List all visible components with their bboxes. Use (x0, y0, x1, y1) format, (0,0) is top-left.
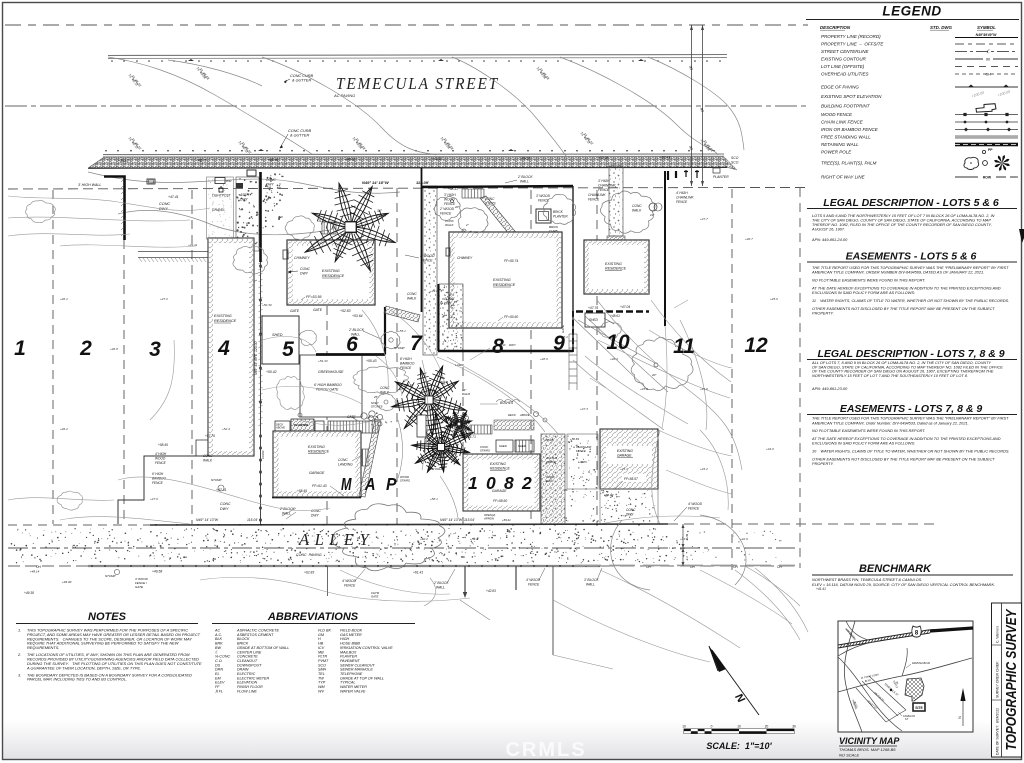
svg-text:3' WOOD: 3' WOOD (536, 194, 551, 198)
svg-text:ALLEY: ALLEY (298, 530, 374, 549)
svg-text:AMERICAN TITLE COMPANY, Order: AMERICAN TITLE COMPANY, Order Number: DI… (811, 421, 969, 425)
svg-text:8: 8 (504, 473, 514, 493)
svg-text:N49° 14' 18"W: N49° 14' 18"W (362, 180, 390, 185)
svg-text:+58.06: +58.06 (544, 438, 554, 442)
svg-text:2.: 2. (17, 652, 21, 657)
svg-text:1: 1 (14, 337, 26, 360)
svg-text:PALM: PALM (377, 214, 386, 218)
svg-text:WOOD: WOOD (155, 457, 166, 461)
svg-text:GATE: GATE (290, 309, 300, 313)
svg-text:STD. DWG: STD. DWG (930, 25, 953, 30)
svg-text:PROPERTY.: PROPERTY. (812, 462, 834, 466)
svg-text:LIGHTPOST: LIGHTPOST (212, 194, 232, 198)
svg-text:LOTS 5 AND 6 AND THE NORTHWEST: LOTS 5 AND 6 AND THE NORTHWESTERLY 15 FE… (812, 214, 995, 218)
svg-text:GREENHOUSE: GREENHOUSE (318, 370, 344, 374)
svg-text:N49° 43' 49"E 120.00': N49° 43' 49"E 120.00' (254, 341, 258, 375)
svg-text:+44.0: +44.0 (766, 447, 774, 451)
svg-text:14" PALM: 14" PALM (430, 467, 444, 471)
svg-text:NORTHWEST BRASS PIN, TEMECULA: NORTHWEST BRASS PIN, TEMECULA STREET & C… (812, 578, 922, 582)
svg-text:FENCE: FENCE (155, 461, 167, 465)
svg-text:SITE: SITE (915, 706, 923, 710)
svg-text:4' HIGH: 4' HIGH (155, 452, 167, 456)
svg-text:DWY: DWY (266, 183, 274, 187)
svg-text:WV: WV (318, 689, 324, 693)
svg-text:GARAGE: GARAGE (309, 471, 325, 475)
svg-text:DECK: DECK (508, 413, 516, 417)
svg-text:GARAGE: GARAGE (617, 454, 632, 458)
svg-text:PROPERTY LINE – OFFSITE: PROPERTY LINE – OFFSITE (821, 41, 884, 46)
svg-text:CONC: CONC (203, 454, 213, 458)
svg-text:EXISTING: EXISTING (308, 445, 325, 449)
svg-text:12: 12 (744, 334, 768, 357)
svg-text:2: 2 (79, 337, 92, 360)
svg-text:TREE(S), PLANT(S), PALM: TREE(S), PLANT(S), PALM (821, 160, 877, 165)
svg-text:GATE: GATE (371, 595, 379, 599)
svg-text:AT THE DATE HEREOF EXCEPTIONS: AT THE DATE HEREOF EXCEPTIONS TO COVERAG… (811, 286, 1001, 290)
svg-text:DATE OF SURVEY: 8/24/2022: DATE OF SURVEY: 8/24/2022 (996, 708, 1000, 755)
svg-text:PLANTER: PLANTER (553, 215, 568, 219)
svg-text:LEGEND: LEGEND (882, 4, 941, 19)
svg-text:4: 4 (217, 337, 230, 360)
svg-text:CONC: CONC (261, 449, 265, 459)
svg-text:RESIDENCE: RESIDENCE (308, 450, 330, 454)
svg-text:RETAINING WALL: RETAINING WALL (821, 142, 859, 147)
svg-text:NORTHWESTERLY 15 FEET OF LOT 7: NORTHWESTERLY 15 FEET OF LOT 7 AND THE S… (812, 374, 968, 378)
svg-text:+52.83: +52.83 (340, 309, 351, 313)
svg-text:CHAINLINK: CHAINLINK (588, 193, 606, 197)
svg-text:THOMAS BROS. MAP 1268-B5: THOMAS BROS. MAP 1268-B5 (839, 747, 896, 752)
svg-text:+56.00: +56.00 (604, 493, 614, 497)
svg-text:APN: 449-861-23-00: APN: 449-861-23-00 (811, 387, 848, 391)
svg-text:+49.14: +49.14 (30, 570, 40, 574)
svg-text:EXISTING: EXISTING (605, 262, 622, 266)
svg-text:EDGE OF PAVING: EDGE OF PAVING (821, 84, 859, 89)
svg-text:+47.3: +47.3 (580, 407, 588, 411)
svg-text:NO PLOTTABLE EASEMENTS WERE FO: NO PLOTTABLE EASEMENTS WERE FOUND IN THI… (812, 279, 925, 283)
svg-text:PROPERTY.: PROPERTY. (812, 312, 834, 316)
svg-text:2' BLOCK: 2' BLOCK (348, 328, 365, 332)
svg-text:THE CITY OF SAN DIEGO, COUNTY: THE CITY OF SAN DIEGO, COUNTY OF SAN DIE… (812, 219, 991, 223)
svg-text:FF=50.60: FF=50.60 (504, 315, 518, 319)
svg-text:OTHER EASEMENTS NOT DISCLOSED: OTHER EASEMENTS NOT DISCLOSED BY THE TIT… (812, 458, 995, 462)
svg-text:APN: 449-861-24-00: APN: 449-861-24-00 (811, 238, 848, 242)
svg-text:PP: PP (988, 148, 993, 152)
svg-text:+47.7: +47.7 (700, 217, 708, 221)
svg-text:+53.64: +53.64 (352, 314, 363, 318)
svg-text:1.: 1. (18, 628, 21, 633)
svg-text:AMERICAN TITLE COMPANY, ORDER: AMERICAN TITLE COMPANY, ORDER NUMBER DIV… (811, 271, 984, 275)
svg-text:PALM: PALM (462, 392, 470, 396)
svg-text:FENCE: FENCE (440, 212, 452, 216)
svg-text:115.09': 115.09' (416, 180, 430, 185)
svg-text:+46.7: +46.7 (745, 237, 753, 241)
svg-text:8: 8 (492, 335, 504, 358)
svg-text:BAMBOO: BAMBOO (400, 362, 415, 366)
svg-text:+57.76: +57.76 (408, 415, 418, 419)
svg-text:+50.42: +50.42 (266, 370, 277, 374)
svg-text:STAIRS: STAIRS (400, 479, 410, 483)
svg-text:RESIDENCE: RESIDENCE (605, 267, 627, 271)
svg-text:SCO: SCO (731, 161, 739, 165)
svg-text:WALK: WALK (632, 209, 642, 213)
svg-text:AT THE DATE HEREOF EXCEPTIONS: AT THE DATE HEREOF EXCEPTIONS TO COVERAG… (811, 437, 1001, 441)
svg-text:CONC: CONC (626, 508, 636, 512)
svg-text:DWY: DWY (444, 302, 452, 306)
svg-text:THEREOF NO. 1082, FILED IN THE: THEREOF NO. 1082, FILED IN THE OFFICE OF… (812, 223, 992, 227)
svg-text:APRON: APRON (483, 517, 495, 521)
svg-text:+49.02: +49.02 (345, 158, 355, 162)
svg-text:SURVEY CREW CHIEF:: SURVEY CREW CHIEF: (996, 661, 1000, 698)
svg-text:CONC: CONC (444, 297, 454, 301)
svg-text:STUMP: STUMP (211, 478, 222, 482)
svg-text:FENCE: FENCE (676, 200, 688, 204)
svg-text:+58.45: +58.45 (158, 443, 168, 447)
svg-text:NO SCALE: NO SCALE (839, 753, 860, 758)
svg-text:STAIRS: STAIRS (480, 449, 490, 453)
svg-text:+45.8: +45.8 (640, 387, 648, 391)
svg-text:7: 7 (410, 332, 423, 355)
svg-text:+46.3: +46.3 (610, 357, 618, 361)
svg-text:CONC: CONC (300, 267, 311, 271)
svg-text:EXCLUSIONS IN SAID POLICY FORM: EXCLUSIONS IN SAID POLICY FORM ARE AS FO… (812, 442, 915, 446)
svg-text:N49° 14' 13"W: N49° 14' 13"W (196, 518, 219, 522)
svg-text:10: 10 (682, 725, 686, 729)
svg-text:STREET CENTERLINE: STREET CENTERLINE (821, 49, 870, 54)
svg-text:11: 11 (673, 335, 695, 358)
svg-text:+49.30: +49.30 (62, 580, 72, 584)
svg-text:VICINITY MAP: VICINITY MAP (839, 736, 900, 746)
svg-text:7.5': 7.5' (685, 556, 689, 561)
svg-text:EXISTING: EXISTING (322, 269, 340, 273)
svg-text:CRMLS: CRMLS (505, 739, 586, 761)
svg-text:+46.1: +46.1 (60, 297, 68, 301)
svg-text:CONC: CONC (338, 458, 348, 462)
svg-text:+48.76: +48.76 (196, 159, 206, 163)
svg-text:STUMP: STUMP (394, 346, 405, 350)
svg-text:6: 6 (346, 333, 358, 356)
svg-text:CONC: CONC (407, 292, 417, 296)
svg-text:3' HIGH WALL: 3' HIGH WALL (78, 183, 101, 187)
svg-text:+49.12: +49.12 (432, 157, 442, 161)
svg-text:SCALE: 1"=10': SCALE: 1"=10' (706, 741, 772, 751)
svg-text:GATE: GATE (313, 308, 323, 312)
svg-text:2' BLOCK: 2' BLOCK (433, 581, 449, 585)
svg-text:ABOVE: ABOVE (519, 413, 530, 417)
svg-text:POWER POLE: POWER POLE (821, 149, 852, 154)
svg-text:WOOD FENCE: WOOD FENCE (821, 112, 853, 117)
svg-text:RESIDENCE: RESIDENCE (493, 283, 516, 287)
svg-text:FENCE: FENCE (528, 583, 540, 587)
svg-text:115.04': 115.04' (247, 518, 258, 522)
svg-text:+46.2: +46.2 (60, 427, 68, 431)
svg-text:+49.11: +49.11 (188, 243, 198, 247)
svg-text:15': 15' (675, 540, 679, 544)
svg-text:DWY: DWY (509, 343, 517, 347)
svg-text:CONC: CONC (266, 178, 276, 182)
svg-text:5: 5 (282, 338, 294, 361)
svg-text:SHED: SHED (589, 318, 599, 322)
svg-text:23": 23" (649, 213, 655, 217)
svg-text:+57.76: +57.76 (205, 434, 215, 438)
svg-text:+50.18: +50.18 (598, 156, 608, 160)
svg-text:+43.2: +43.2 (700, 467, 708, 471)
svg-text:FF=58.60: FF=58.60 (493, 499, 507, 503)
svg-text:SYMBOL: SYMBOL (977, 25, 996, 30)
svg-text:CONC PAVING: CONC PAVING (296, 553, 322, 557)
svg-text:STUMP: STUMP (105, 574, 116, 578)
svg-text:4' WOOD: 4' WOOD (688, 502, 703, 506)
svg-text:THE TITLE REPORT USED FOR THIS: THE TITLE REPORT USED FOR THIS TOPOGRAPH… (812, 417, 1009, 421)
svg-text:DWY: DWY (300, 272, 309, 276)
svg-text:0: 0 (486, 473, 496, 493)
svg-text:10: 10 (737, 725, 741, 729)
svg-text:36": 36" (377, 209, 383, 213)
svg-text:PARCEL MAP, INCLUDING TIES TO: PARCEL MAP, INCLUDING TIES TO AND B3 CON… (27, 677, 127, 682)
svg-text:CONC: CONC (220, 502, 231, 506)
svg-text:+52.4: +52.4 (222, 427, 230, 431)
svg-text:AUGUST 26, 1907.: AUGUST 26, 1907. (811, 228, 845, 232)
svg-text:2' BLOCK: 2' BLOCK (517, 175, 533, 179)
svg-text:DESCRIPTION: DESCRIPTION (820, 25, 851, 30)
svg-text:EXISTING CONTOUR: EXISTING CONTOUR (821, 56, 867, 61)
svg-text:EASEMENTS - LOTS 7, 8 & 9: EASEMENTS - LOTS 7, 8 & 9 (840, 403, 983, 415)
svg-text:4' WOOD: 4' WOOD (526, 578, 541, 582)
svg-text:+58.1: +58.1 (430, 497, 438, 501)
svg-text:+56.63: +56.63 (570, 437, 579, 441)
svg-text:REQUIREMENTS.: REQUIREMENTS. (27, 645, 59, 650)
svg-text:PROPERTY LINE (RECORD): PROPERTY LINE (RECORD) (821, 34, 881, 39)
svg-text:LEGAL DESCRIPTION - LOTS 7, 8: LEGAL DESCRIPTION - LOTS 7, 8 & 9 (817, 348, 1004, 360)
svg-text:EXCLUSIONS IN SAID POLICY FORM: EXCLUSIONS IN SAID POLICY FORM ARE AS FO… (812, 291, 915, 295)
svg-text:EXISTING: EXISTING (617, 449, 633, 453)
svg-text:FREE STANDING WALL: FREE STANDING WALL (821, 134, 871, 139)
svg-text:A GUARANTEE OF THEIR LOCATION,: A GUARANTEE OF THEIR LOCATION, DEPTH, SI… (26, 665, 141, 670)
svg-text:2' WOOD: 2' WOOD (439, 207, 455, 211)
svg-text:P: P (386, 474, 397, 494)
svg-text:SHED: SHED (518, 444, 526, 448)
svg-text:+49.58: +49.58 (152, 570, 162, 574)
svg-text:1: 1 (468, 473, 478, 493)
svg-text:WALL: WALL (436, 586, 445, 590)
svg-text:ELEV = 16.116, DATUM NGVD 29,: ELEV = 16.116, DATUM NGVD 29, SOURCE: CI… (812, 583, 995, 587)
svg-text:DWY: DWY (311, 514, 319, 518)
svg-text:FAMOSA BLVD: FAMOSA BLVD (912, 661, 930, 665)
svg-text:NO PLOTTABLE EASEMENTS WERE FO: NO PLOTTABLE EASEMENTS WERE FOUND IN THI… (812, 429, 925, 433)
svg-text:BRICK: BRICK (553, 210, 564, 214)
svg-text:CHAIN LINK FENCE: CHAIN LINK FENCE (821, 119, 864, 124)
svg-text:RESIDENCE: RESIDENCE (490, 467, 511, 471)
svg-text:6' HIGH: 6' HIGH (152, 472, 164, 476)
svg-text:+49.8: +49.8 (430, 289, 438, 293)
svg-text:+49.30: +49.30 (520, 157, 530, 161)
svg-text:WATER VALVE: WATER VALVE (340, 689, 366, 693)
svg-text:A: A (364, 474, 375, 494)
svg-text:+45.0: +45.0 (770, 297, 778, 301)
svg-text:LANDING: LANDING (338, 463, 353, 467)
svg-text:CONC CURB: CONC CURB (290, 74, 313, 78)
svg-text:THE TITLE REPORT USED FOR THIS: THE TITLE REPORT USED FOR THIS TOPOGRAPH… (812, 266, 1009, 270)
svg-text:LAWN: LAWN (455, 363, 464, 367)
svg-text:FENCE: FENCE (588, 198, 600, 202)
svg-text:0: 0 (711, 725, 713, 729)
svg-text:ℌ FL: ℌ FL (215, 689, 223, 693)
svg-text:FENCE: FENCE (688, 507, 700, 511)
svg-text:4' WOOD: 4' WOOD (342, 579, 357, 583)
svg-text:BENCHMARK: BENCHMARK (859, 563, 932, 575)
svg-text:PLANTER: PLANTER (294, 423, 309, 427)
svg-text:WALK: WALK (445, 223, 454, 227)
svg-text:3: 3 (149, 338, 161, 361)
svg-text:DWY: DWY (546, 479, 554, 483)
svg-text:+47.2: +47.2 (160, 297, 168, 301)
svg-text:ST: ST (905, 718, 909, 721)
svg-text:LOT LINE (OFFSITE): LOT LINE (OFFSITE) (821, 64, 865, 69)
svg-text:RESIDENCE: RESIDENCE (322, 274, 345, 278)
svg-text:WALL: WALL (586, 583, 595, 587)
svg-text:OH: OH (985, 73, 991, 77)
svg-text:WALK: WALK (407, 297, 417, 301)
svg-text:DWY: DWY (626, 513, 634, 517)
svg-text:30: 30 (792, 725, 796, 729)
svg-text:11 WATER RIGHTS, CLAIMS OF: 11 WATER RIGHTS, CLAIMS OF TITLE TO WATE… (812, 299, 1009, 303)
svg-text:+55.1: +55.1 (398, 329, 406, 333)
svg-text:7.5': 7.5' (685, 536, 689, 541)
svg-text:ROW: ROW (983, 175, 992, 179)
svg-text:+54.71: +54.71 (466, 435, 476, 439)
svg-text:FENCE: FENCE (538, 199, 550, 203)
svg-text:OTHER EASEMENTS NOT DISCLOSED: OTHER EASEMENTS NOT DISCLOSED BY THE TIT… (812, 307, 995, 311)
svg-text:ASPH: ASPH (239, 193, 250, 197)
svg-text:+55.43: +55.43 (366, 359, 377, 363)
svg-text:+41.41: +41.41 (816, 587, 826, 591)
svg-text:+48.96: +48.96 (268, 158, 278, 162)
svg-text:EASEMENTS - LOTS 5 & 6: EASEMENTS - LOTS 5 & 6 (846, 251, 977, 263)
svg-text:FF=55.57: FF=55.57 (624, 477, 638, 481)
svg-text:FF=50.74: FF=50.74 (504, 259, 518, 263)
svg-text:+47.41: +47.41 (168, 195, 179, 199)
svg-text:FENCE: FENCE (344, 584, 356, 588)
svg-text:EXISTING: EXISTING (214, 314, 232, 318)
svg-text:& GUTTER: & GUTTER (290, 134, 309, 138)
svg-text:NOTES: NOTES (88, 611, 127, 623)
svg-text:+47.04: +47.04 (620, 305, 630, 309)
svg-text:BUSHES: BUSHES (500, 401, 514, 405)
svg-text:DWY: DWY (240, 198, 248, 202)
svg-text:+50.30: +50.30 (262, 303, 272, 307)
svg-text:N49° 14' 13"W 115.04': N49° 14' 13"W 115.04' (440, 518, 475, 522)
svg-text:2: 2 (521, 473, 532, 493)
svg-text:LAWN: LAWN (578, 460, 587, 464)
svg-text:10: 10 (606, 331, 630, 354)
svg-text:+47.9: +47.9 (150, 497, 158, 501)
svg-text:3' HIGH: 3' HIGH (598, 179, 610, 183)
svg-text:CONC CURB: CONC CURB (288, 129, 311, 133)
svg-text:ABOVE: ABOVE (545, 460, 556, 464)
svg-text:+46.8: +46.8 (110, 347, 118, 351)
svg-text:CONC: CONC (159, 202, 170, 206)
svg-text:FF=53.56: FF=53.56 (306, 295, 321, 299)
svg-text:+42.9: +42.9 (740, 537, 748, 541)
svg-text:20: 20 (765, 725, 769, 729)
svg-text:CHAINLINK: CHAINLINK (598, 184, 616, 188)
svg-text:RESIDENCE: RESIDENCE (214, 319, 237, 323)
svg-text:SHED: SHED (499, 444, 507, 448)
svg-text:PLANTER: PLANTER (713, 175, 729, 179)
svg-text:IRON OR BAMBOO FENCE: IRON OR BAMBOO FENCE (821, 127, 879, 132)
svg-text:FENCE: FENCE (576, 449, 586, 453)
svg-text:+48.45: +48.45 (118, 159, 128, 163)
svg-text:FF=61.43: FF=61.43 (312, 484, 327, 488)
svg-text:20": 20" (651, 373, 657, 377)
svg-text:DWY: DWY (220, 507, 229, 511)
svg-text:EXISTING: EXISTING (493, 278, 511, 282)
svg-text:ABBREVIATIONS: ABBREVIATIONS (267, 611, 359, 623)
svg-text:FENCE: FENCE (152, 481, 164, 485)
svg-text:+54.43: +54.43 (318, 359, 328, 363)
svg-text:EXISTING: EXISTING (490, 462, 506, 466)
svg-text:WALL: WALL (520, 180, 529, 184)
svg-text:CHIMNEY: CHIMNEY (457, 256, 473, 260)
svg-text:ABOVE: ABOVE (275, 426, 285, 430)
svg-text:4' HIGH: 4' HIGH (676, 191, 688, 195)
svg-text:BUILDING FOOTPRINT: BUILDING FOOTPRINT (821, 103, 871, 108)
svg-text:RIGHT OF WAY LINE: RIGHT OF WAY LINE (821, 174, 866, 179)
svg-text:CONC: CONC (380, 386, 390, 390)
svg-text:+61.41: +61.41 (413, 571, 423, 575)
svg-text:WM: WM (226, 179, 232, 183)
svg-text:+42.83: +42.83 (486, 589, 496, 593)
svg-text:FENCE: FENCE (598, 188, 610, 192)
svg-text:N: N (957, 716, 962, 719)
svg-text:N49°49'49"W: N49°49'49"W (976, 33, 998, 37)
svg-text:C. Warners: C. Warners (996, 626, 1000, 643)
svg-text:10 WATER RIGHTS, CLAIMS OF: 10 WATER RIGHTS, CLAIMS OF TITLE TO WATE… (812, 450, 1009, 454)
svg-text:M: M (341, 474, 352, 494)
svg-text:TOPOGRAPHIC SURVEY: TOPOGRAPHIC SURVEY (1004, 608, 1020, 750)
svg-text:20": 20" (454, 205, 460, 209)
svg-text:PALM: PALM (440, 380, 448, 384)
svg-text:8' HIGH: 8' HIGH (400, 357, 412, 361)
svg-text:OVERHEAD UTILITIES: OVERHEAD UTILITIES (821, 71, 869, 76)
svg-text:CONC: CONC (632, 204, 642, 208)
svg-text:LEGAL DESCRIPTION - LOTS 5 & 6: LEGAL DESCRIPTION - LOTS 5 & 6 (823, 197, 999, 209)
svg-text:+49.38: +49.38 (24, 591, 34, 595)
svg-text:SCO: SCO (731, 156, 739, 160)
svg-text:6' HIGH BAMBOO: 6' HIGH BAMBOO (314, 383, 342, 387)
svg-text:CHAINLINK: CHAINLINK (676, 196, 694, 200)
svg-text:WALK: WALK (203, 459, 213, 463)
svg-text:CHIMNEY: CHIMNEY (294, 256, 310, 260)
svg-text:+47.76: +47.76 (588, 306, 598, 310)
svg-text:+59.41: +59.41 (502, 518, 511, 522)
svg-text:GATE: GATE (135, 585, 144, 589)
svg-text:EXISTING SPOT ELEVATION: EXISTING SPOT ELEVATION (821, 94, 882, 99)
svg-text:3.: 3. (18, 672, 21, 677)
svg-text:+48.9: +48.9 (540, 357, 548, 361)
svg-text:9: 9 (553, 332, 565, 355)
svg-text:+50.43: +50.43 (660, 156, 670, 160)
svg-text:+62.83: +62.83 (304, 571, 314, 575)
svg-text:+58.45: +58.45 (297, 489, 307, 493)
svg-text:GRAVEL: GRAVEL (212, 208, 225, 212)
svg-text:& GUTTER: & GUTTER (292, 79, 311, 83)
svg-text:TEMECULA STREET: TEMECULA STREET (336, 74, 499, 93)
svg-text:FLOW LINE: FLOW LINE (237, 689, 257, 693)
